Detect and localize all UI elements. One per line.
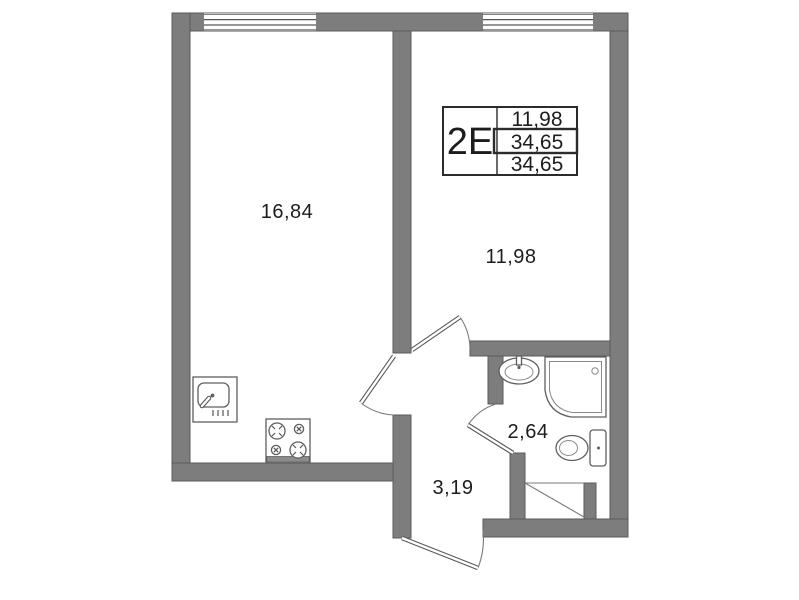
hallway-area-label: 3,19 xyxy=(433,477,474,499)
door-swing-arc xyxy=(361,403,394,415)
wall-shaft-stub xyxy=(584,483,596,519)
wall-bedroom-bath-divider xyxy=(470,341,610,356)
kitchen-sink-icon xyxy=(193,377,237,422)
shower-icon xyxy=(545,357,606,417)
apartment-type-label: 2Е xyxy=(447,121,493,163)
door-living xyxy=(361,356,394,415)
wall-right xyxy=(610,31,628,537)
bath-sink-icon xyxy=(499,356,539,384)
door-entrance xyxy=(402,530,483,568)
bedroom-area-label: 11,98 xyxy=(485,246,536,268)
wall-interior-upper xyxy=(393,31,411,353)
floor-plan-canvas: 16,84 11,98 2,64 3,19 2Е 11,98 34,65 34,… xyxy=(0,0,799,600)
walls xyxy=(172,13,628,538)
living-area-label: 16,84 xyxy=(261,201,314,223)
door-bathroom xyxy=(468,404,513,453)
door-bedroom xyxy=(412,317,470,350)
wall-bath-left-upper xyxy=(488,356,503,404)
wall-bath-left-lower xyxy=(510,453,525,519)
bathroom-area-label: 2,64 xyxy=(508,421,549,443)
door-swing-arc xyxy=(460,317,470,349)
window-living xyxy=(204,13,316,31)
floor-plan-drawing: 16,84 11,98 2,64 3,19 2Е 11,98 34,65 34,… xyxy=(0,0,799,600)
info-row-2: 34,65 xyxy=(511,131,564,154)
info-row-3: 34,65 xyxy=(511,153,564,176)
wall-left xyxy=(172,13,190,481)
wall-bottom-right xyxy=(483,519,628,537)
info-box: 2Е 11,98 34,65 34,65 xyxy=(443,107,577,176)
info-row-1: 11,98 xyxy=(512,108,563,131)
window-bedroom xyxy=(483,13,593,31)
storage-hatch xyxy=(525,483,584,517)
toilet-icon xyxy=(556,430,606,466)
door-swing-arc xyxy=(468,404,496,425)
wall-bottom-left xyxy=(172,463,411,481)
stove-icon xyxy=(266,419,310,463)
wall-interior-lower xyxy=(393,415,411,538)
